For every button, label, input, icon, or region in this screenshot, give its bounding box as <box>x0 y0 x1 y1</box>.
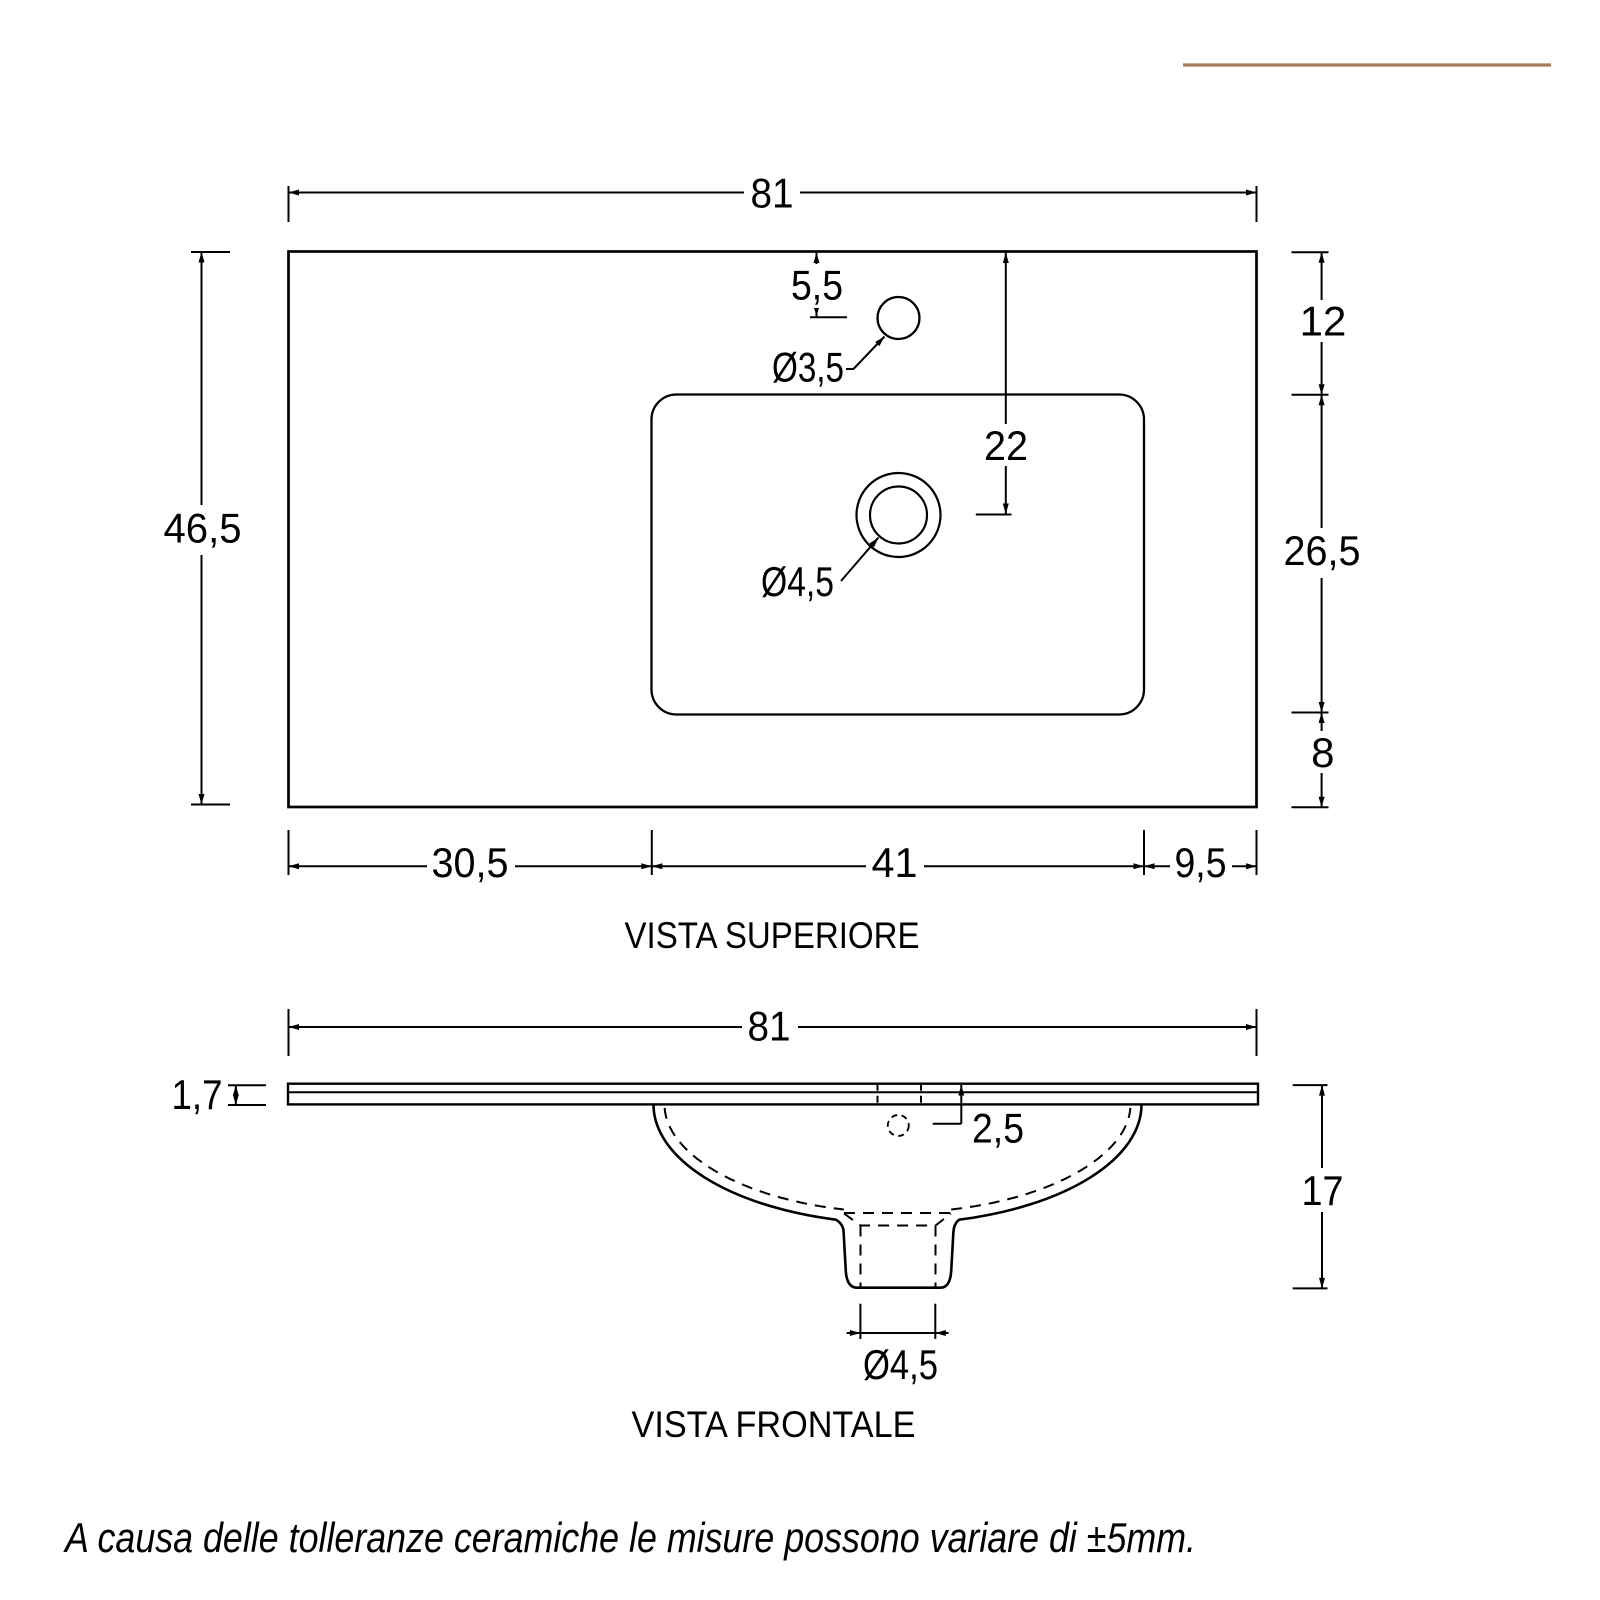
svg-text:41: 41 <box>872 839 918 886</box>
svg-text:12: 12 <box>1300 298 1347 345</box>
svg-text:Ø4,5: Ø4,5 <box>863 1341 938 1388</box>
svg-text:2,5: 2,5 <box>972 1105 1024 1152</box>
svg-text:26,5: 26,5 <box>1284 527 1361 574</box>
svg-text:5,5: 5,5 <box>791 262 843 309</box>
svg-text:Ø3,5: Ø3,5 <box>772 344 844 391</box>
svg-text:1,7: 1,7 <box>172 1071 223 1118</box>
svg-text:VISTA SUPERIORE: VISTA SUPERIORE <box>625 915 920 956</box>
svg-text:81: 81 <box>751 170 794 217</box>
svg-text:Ø4,5: Ø4,5 <box>761 558 834 605</box>
svg-text:81: 81 <box>748 1003 791 1050</box>
svg-text:46,5: 46,5 <box>164 505 242 552</box>
svg-text:30,5: 30,5 <box>432 839 509 886</box>
svg-text:VISTA FRONTALE: VISTA FRONTALE <box>632 1404 916 1445</box>
svg-text:8: 8 <box>1311 729 1334 776</box>
svg-text:9,5: 9,5 <box>1175 839 1227 886</box>
svg-text:22: 22 <box>984 422 1028 469</box>
svg-text:17: 17 <box>1302 1167 1344 1214</box>
svg-text:A causa delle tolleranze ceram: A causa delle tolleranze ceramiche le mi… <box>62 1514 1196 1561</box>
